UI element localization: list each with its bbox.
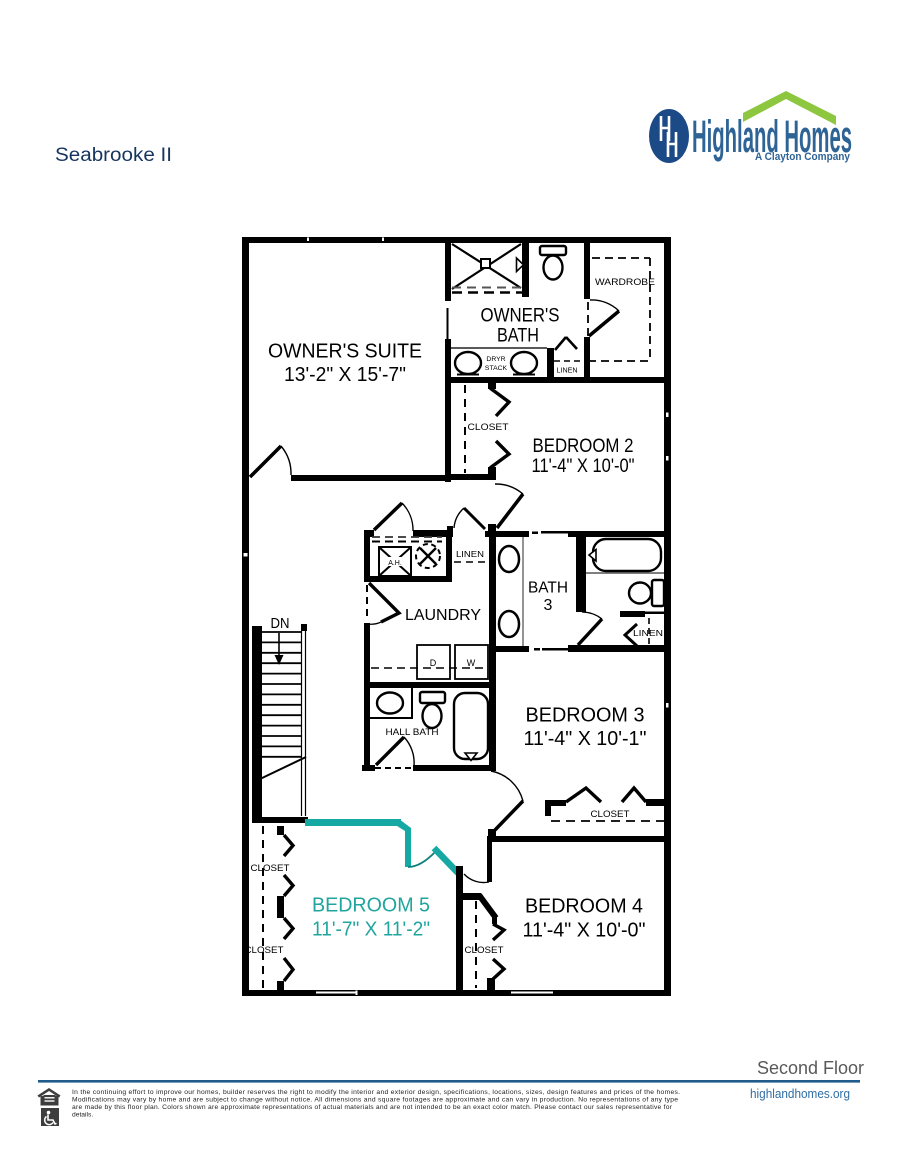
svg-text:Modifications may vary by home: Modifications may vary by home and are s… — [72, 1097, 678, 1104]
svg-text:11'-7" X 11'-2": 11'-7" X 11'-2" — [312, 918, 430, 941]
svg-text:STACK: STACK — [485, 365, 508, 372]
svg-text:11'-4" X 10'-0": 11'-4" X 10'-0" — [523, 919, 646, 942]
svg-text:BATH: BATH — [528, 580, 568, 597]
svg-text:BEDROOM 2: BEDROOM 2 — [533, 435, 634, 457]
svg-text:LINEN: LINEN — [456, 550, 484, 559]
svg-text:CLOSET: CLOSET — [251, 863, 290, 874]
svg-text:HALL BATH: HALL BATH — [386, 727, 439, 737]
svg-text:A.H.: A.H. — [388, 560, 402, 567]
svg-text:OWNER'S SUITE: OWNER'S SUITE — [268, 341, 422, 363]
svg-text:BEDROOM 5: BEDROOM 5 — [312, 894, 430, 917]
svg-text:W: W — [467, 658, 476, 668]
svg-text:Second Floor: Second Floor — [757, 1058, 864, 1078]
svg-text:11'-4" X 10'-1": 11'-4" X 10'-1" — [524, 727, 647, 750]
svg-text:13'-2" X 15'-7": 13'-2" X 15'-7" — [284, 364, 406, 386]
svg-text:CLOSET: CLOSET — [245, 945, 284, 956]
svg-text:LINEN: LINEN — [633, 629, 663, 638]
svg-text:BEDROOM 4: BEDROOM 4 — [525, 895, 643, 918]
svg-text:A Clayton Company: A Clayton Company — [755, 151, 851, 163]
svg-text:11'-4" X 10'-0": 11'-4" X 10'-0" — [532, 455, 635, 477]
svg-text:BATH: BATH — [497, 325, 539, 347]
svg-text:CLOSET: CLOSET — [465, 945, 504, 956]
svg-text:CLOSET: CLOSET — [468, 422, 509, 433]
svg-text:Seabrooke II: Seabrooke II — [55, 145, 172, 166]
svg-text:OWNER'S: OWNER'S — [481, 305, 560, 327]
svg-text:WARDROBE: WARDROBE — [595, 277, 655, 288]
svg-text:D: D — [430, 658, 437, 668]
svg-text:LAUNDRY: LAUNDRY — [405, 607, 481, 624]
svg-text:DRYR: DRYR — [486, 356, 505, 363]
svg-text:details.: details. — [72, 1112, 93, 1119]
svg-text:In the continuing effort to im: In the continuing effort to improve our … — [72, 1089, 680, 1096]
svg-text:are made by this floor plan. C: are made by this floor plan. Colors show… — [72, 1104, 673, 1111]
svg-text:CLOSET: CLOSET — [591, 809, 630, 820]
svg-text:BEDROOM 3: BEDROOM 3 — [526, 704, 645, 727]
svg-text:highlandhomes.org: highlandhomes.org — [750, 1086, 850, 1101]
svg-text:LINEN: LINEN — [557, 366, 578, 375]
svg-text:DN: DN — [271, 616, 290, 632]
svg-text:3: 3 — [544, 597, 553, 614]
